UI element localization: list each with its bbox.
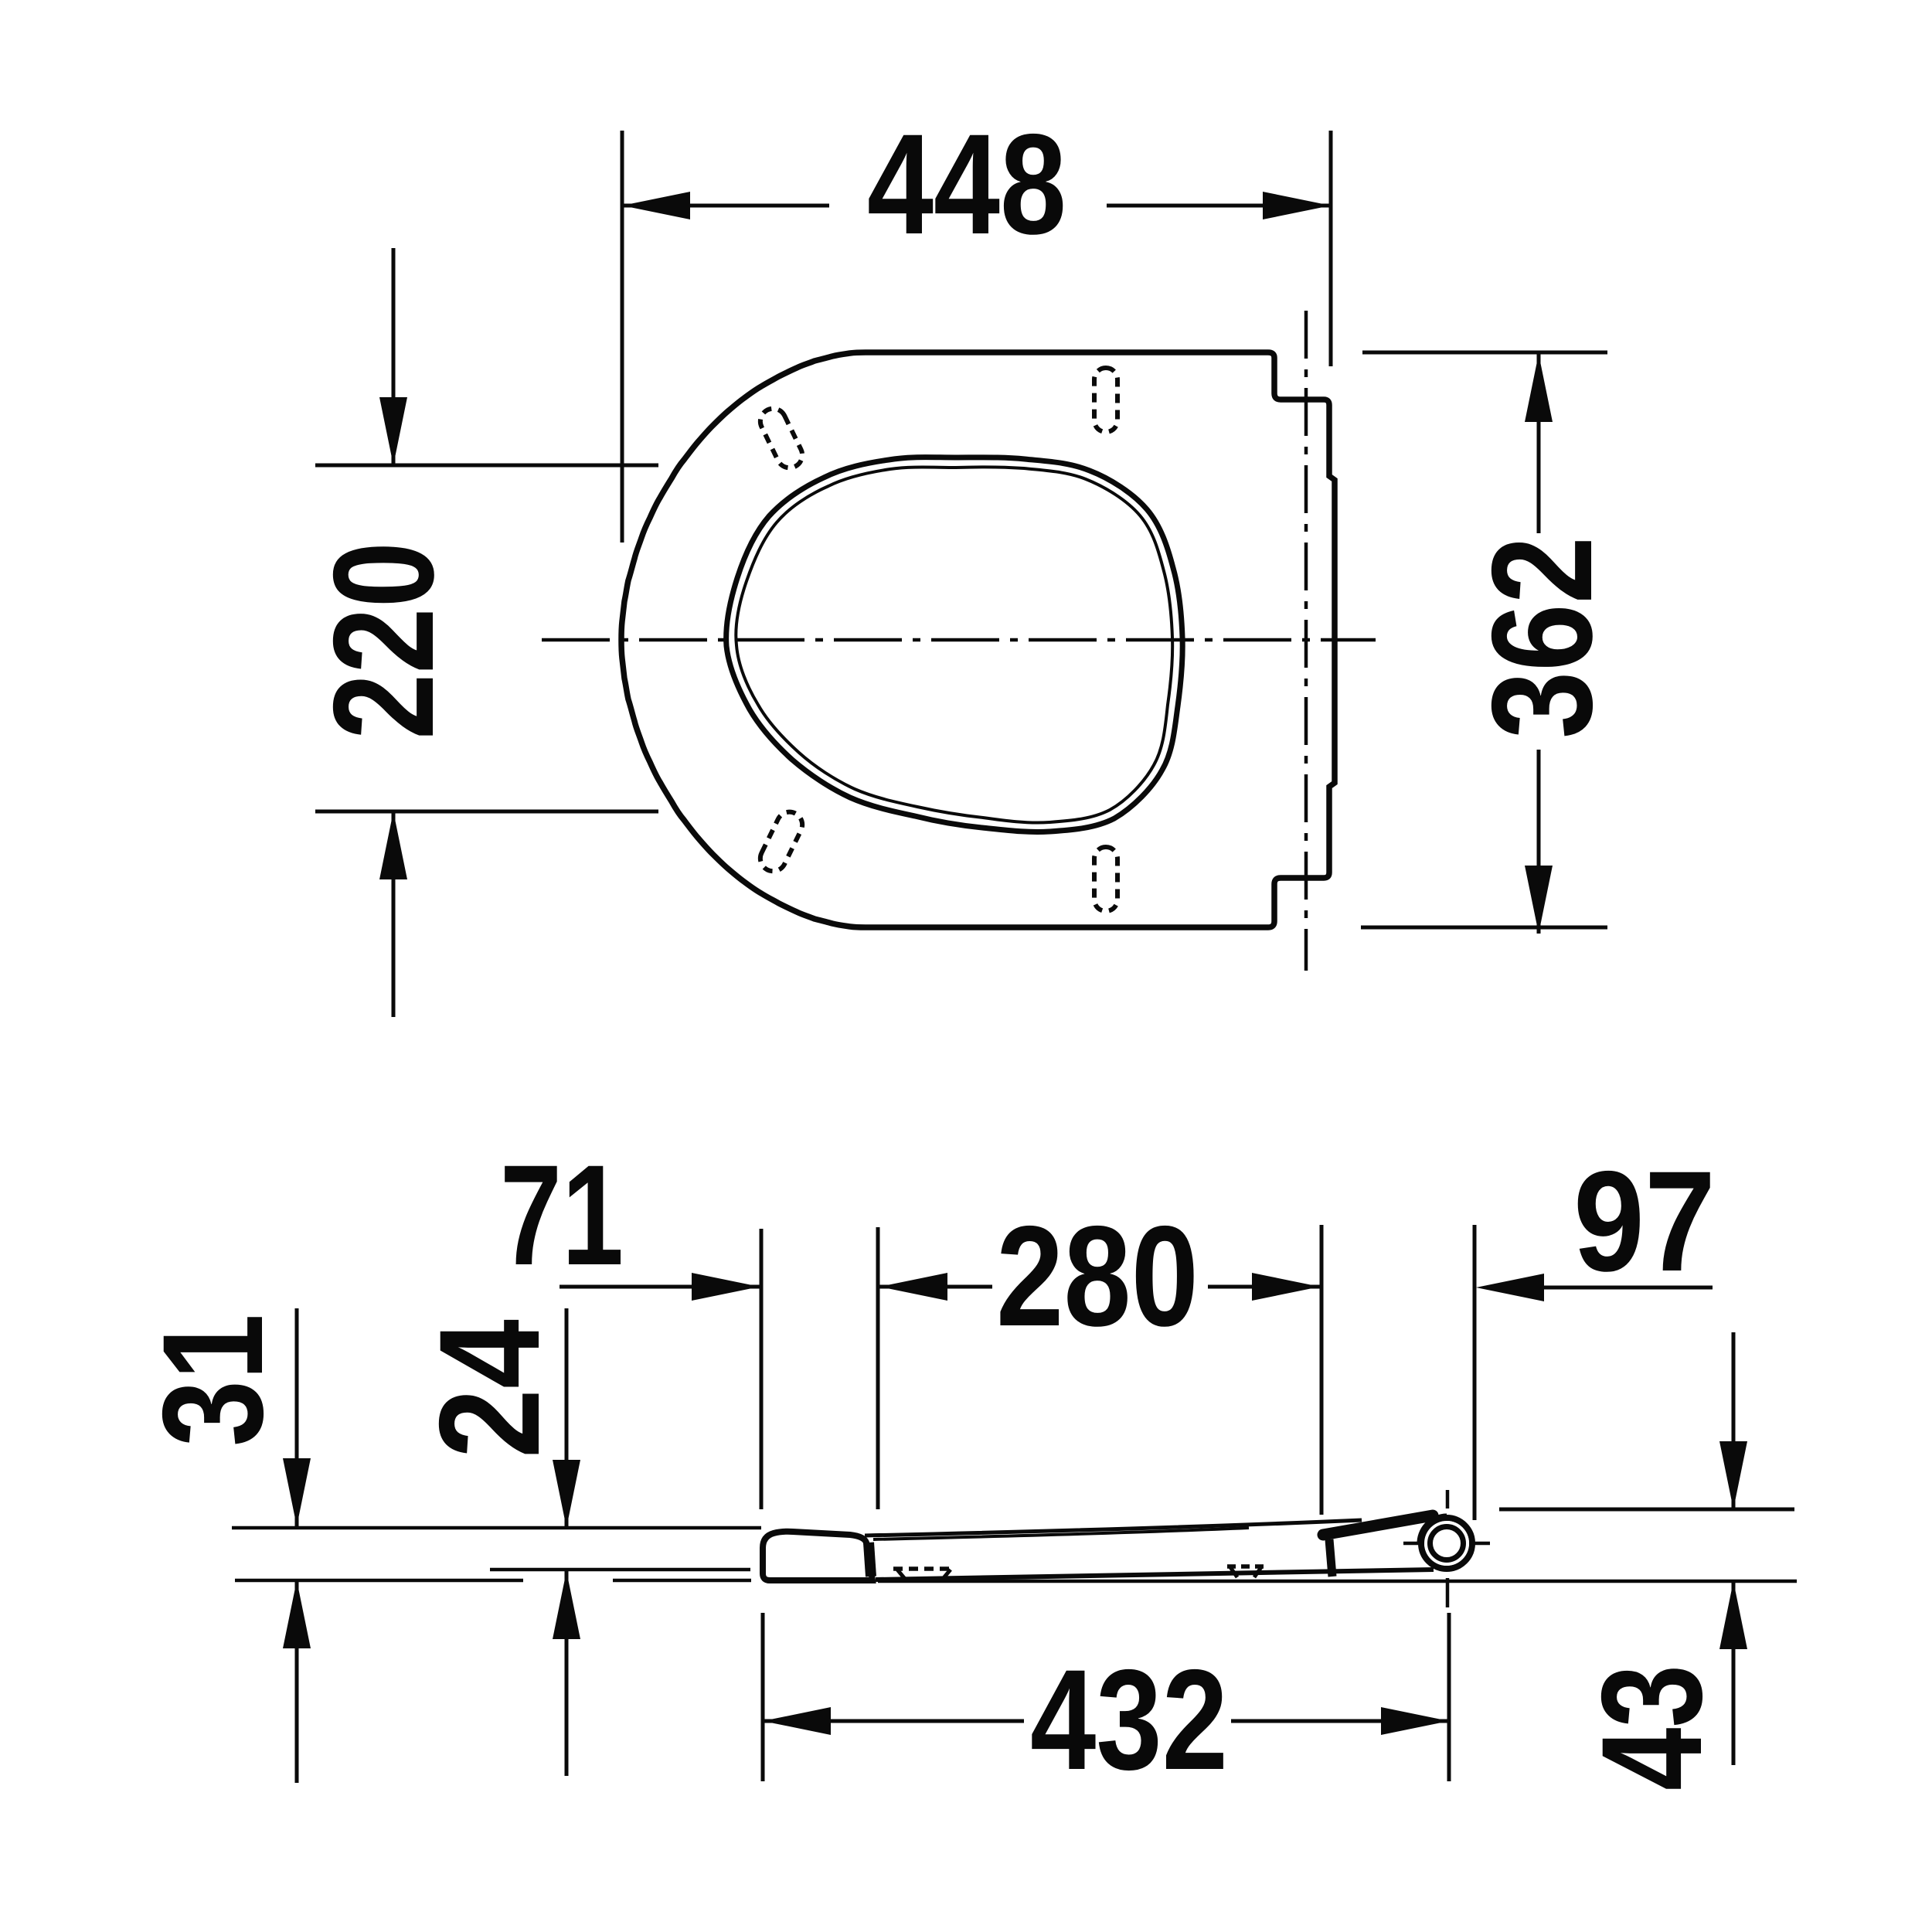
- svg-text:97: 97: [1573, 1142, 1716, 1301]
- svg-text:432: 432: [1030, 1641, 1228, 1800]
- svg-text:220: 220: [304, 542, 464, 740]
- svg-text:24: 24: [410, 1319, 570, 1458]
- svg-text:280: 280: [996, 1197, 1199, 1356]
- svg-text:362: 362: [1463, 536, 1622, 739]
- svg-text:43: 43: [1573, 1665, 1732, 1791]
- svg-text:71: 71: [500, 1136, 624, 1295]
- svg-text:448: 448: [867, 105, 1066, 264]
- svg-text:31: 31: [134, 1314, 293, 1447]
